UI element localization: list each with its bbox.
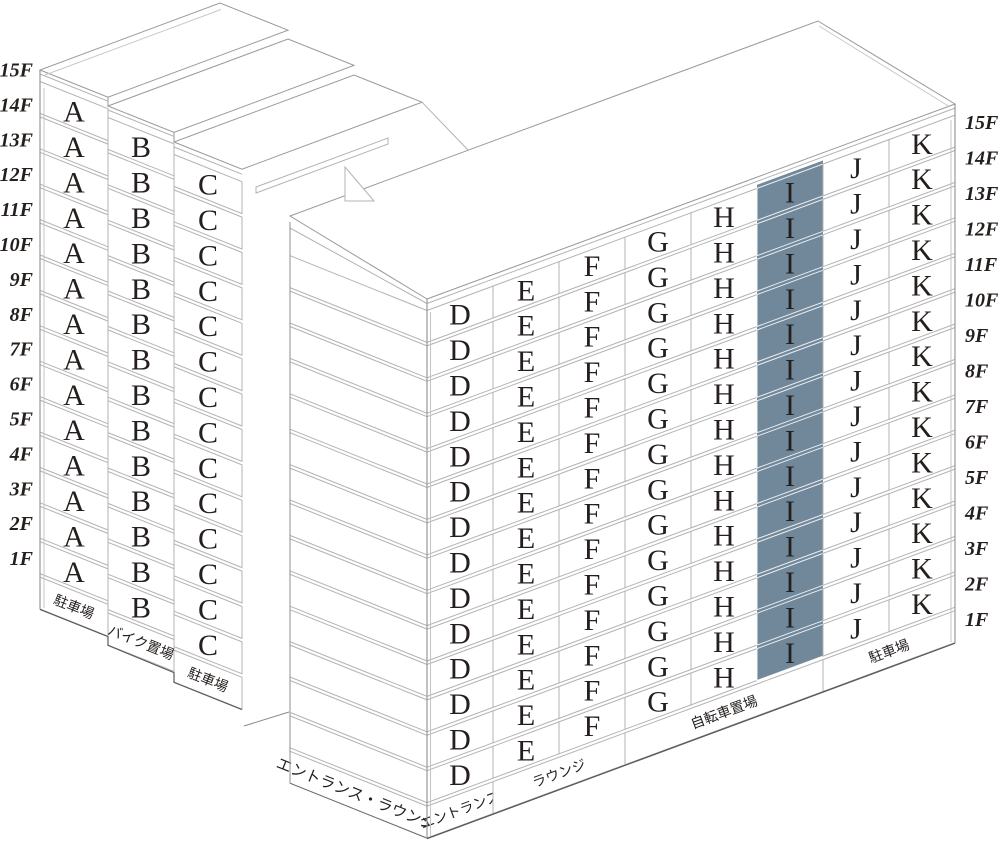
unit-letter-G: G <box>647 686 669 719</box>
unit-letter-J: J <box>850 294 862 327</box>
right-wing-column-E: EEEEEEEEEEEEEE <box>493 262 559 779</box>
side-wall: エントランス・ラウンジ <box>244 222 438 838</box>
unit-letter-C: C <box>198 346 218 379</box>
floor-label-right-6F: 6F <box>965 432 989 454</box>
unit-letter-D: D <box>449 547 471 580</box>
building-unit-map: エントランス・ラウンジAAAAAAAAAAAAAA駐車場BBBBBBBBBBBB… <box>0 0 1001 849</box>
unit-letter-D: D <box>449 334 471 367</box>
unit-letter-A: A <box>63 131 85 164</box>
unit-letter-F: F <box>584 533 601 566</box>
unit-letter-F: F <box>584 427 601 460</box>
unit-letter-D: D <box>449 653 471 686</box>
unit-letter-A: A <box>63 273 85 306</box>
unit-letter-E: E <box>517 664 535 697</box>
unit-letter-K: K <box>911 553 933 586</box>
unit-letter-J: J <box>850 329 862 362</box>
unit-letter-G: G <box>647 367 669 400</box>
unit-letter-B: B <box>131 591 151 624</box>
unit-letter-D: D <box>449 582 471 615</box>
floor-label-right-14F: 14F <box>965 148 999 170</box>
unit-letter-I: I <box>785 389 795 422</box>
unit-letter-E: E <box>517 628 535 661</box>
unit-letter-E: E <box>517 345 535 378</box>
unit-letter-A: A <box>63 202 85 235</box>
floor-label-right-15F: 15F <box>965 112 999 134</box>
unit-letter-H: H <box>713 201 735 234</box>
floor-label-left-11F: 11F <box>1 199 34 221</box>
unit-letter-D: D <box>449 759 471 792</box>
unit-letter-E: E <box>517 416 535 449</box>
unit-letter-J: J <box>850 188 862 221</box>
left-wing: AAAAAAAAAAAAAA駐車場BBBBBBBBBBBBBBバイク置場CCCC… <box>40 70 242 710</box>
unit-letter-F: F <box>584 569 601 602</box>
floor-label-left-7F: 7F <box>10 339 34 361</box>
unit-letter-I: I <box>785 495 795 528</box>
floor-label-left-4F: 4F <box>9 443 34 465</box>
unit-letter-J: J <box>850 400 862 433</box>
unit-letter-C: C <box>198 169 218 202</box>
unit-letter-B: B <box>131 450 151 483</box>
floor-label-left-5F: 5F <box>10 409 34 431</box>
unit-letter-F: F <box>584 604 601 637</box>
unit-letter-C: C <box>198 523 218 556</box>
floor-label-left-14F: 14F <box>0 94 34 116</box>
unit-letter-K: K <box>911 269 933 302</box>
unit-letter-I: I <box>785 247 795 280</box>
unit-letter-A: A <box>63 450 85 483</box>
floor-label-left-1F: 1F <box>10 548 34 570</box>
unit-letter-A: A <box>63 556 85 589</box>
unit-letter-A: A <box>63 308 85 341</box>
unit-letter-B: B <box>131 131 151 164</box>
floor-label-left-13F: 13F <box>0 129 34 151</box>
floor-label-right-13F: 13F <box>965 183 999 205</box>
floor-label-right-1F: 1F <box>965 609 989 631</box>
unit-letter-D: D <box>449 299 471 332</box>
right-wing-column-G: GGGGGGGGGGGGGG <box>625 213 691 730</box>
unit-letter-B: B <box>131 414 151 447</box>
unit-letter-J: J <box>850 365 862 398</box>
right-wing-column-H: HHHHHHHHHHHHHH <box>691 188 757 705</box>
unit-letter-G: G <box>647 438 669 471</box>
unit-letter-C: C <box>198 204 218 237</box>
unit-letter-B: B <box>131 521 151 554</box>
unit-letter-E: E <box>517 310 535 343</box>
unit-letter-J: J <box>850 223 862 256</box>
unit-letter-H: H <box>713 590 735 623</box>
floor-label-left-12F: 12F <box>0 164 34 186</box>
unit-letter-H: H <box>713 661 735 694</box>
roof-notch-triangle <box>345 167 374 201</box>
unit-letter-H: H <box>713 484 735 517</box>
unit-letter-F: F <box>584 462 601 495</box>
unit-letter-B: B <box>131 237 151 270</box>
unit-letter-C: C <box>198 487 218 520</box>
unit-letter-H: H <box>713 378 735 411</box>
floor-label-left-3F: 3F <box>9 478 34 500</box>
floor-label-left-9F: 9F <box>10 269 34 291</box>
floor-label-left-15F: 15F <box>0 60 34 82</box>
unit-letter-B: B <box>131 308 151 341</box>
unit-letter-G: G <box>647 650 669 683</box>
unit-letter-B: B <box>131 167 151 200</box>
unit-letter-K: K <box>911 199 933 232</box>
floor-label-left-10F: 10F <box>0 234 34 256</box>
unit-letter-G: G <box>647 332 669 365</box>
floor-label-right-8F: 8F <box>965 361 989 383</box>
unit-letter-G: G <box>647 509 669 542</box>
unit-letter-F: F <box>584 250 601 283</box>
unit-letter-I: I <box>785 531 795 564</box>
unit-letter-B: B <box>131 556 151 589</box>
unit-letter-H: H <box>713 555 735 588</box>
unit-letter-B: B <box>131 379 151 412</box>
unit-letter-F: F <box>584 675 601 708</box>
unit-letter-H: H <box>713 449 735 482</box>
unit-letter-J: J <box>850 435 862 468</box>
unit-letter-C: C <box>198 381 218 414</box>
unit-letter-A: A <box>63 96 85 129</box>
unit-letter-E: E <box>517 487 535 520</box>
unit-letter-K: K <box>911 305 933 338</box>
unit-letter-G: G <box>647 615 669 648</box>
floor-label-right-10F: 10F <box>965 290 999 312</box>
unit-letter-D: D <box>449 688 471 721</box>
unit-letter-C: C <box>198 558 218 591</box>
unit-letter-E: E <box>517 381 535 414</box>
right-wing-column-J: JJJJJJJJJJJJJJ <box>823 140 889 657</box>
floor-label-right-2F: 2F <box>964 574 989 596</box>
unit-letter-I: I <box>785 566 795 599</box>
unit-letter-A: A <box>63 343 85 376</box>
unit-letter-D: D <box>449 440 471 473</box>
unit-letter-D: D <box>449 724 471 757</box>
unit-letter-B: B <box>131 273 151 306</box>
left-wing-column-A: AAAAAAAAAAAAAA駐車場 <box>40 74 108 636</box>
unit-letter-D: D <box>449 476 471 509</box>
unit-letter-J: J <box>850 258 862 291</box>
unit-letter-F: F <box>584 285 601 318</box>
unit-letter-G: G <box>647 473 669 506</box>
unit-letter-J: J <box>850 152 862 185</box>
unit-letter-C: C <box>198 310 218 343</box>
unit-letter-A: A <box>63 520 85 553</box>
unit-letter-K: K <box>911 446 933 479</box>
unit-letter-G: G <box>647 261 669 294</box>
unit-letter-B: B <box>131 202 151 235</box>
unit-letter-K: K <box>911 128 933 161</box>
unit-letter-D: D <box>449 511 471 544</box>
left-wing-column-C: CCCCCCCCCCCCCC駐車場 <box>174 147 242 709</box>
unit-letter-A: A <box>63 485 85 518</box>
floor-label-right-7F: 7F <box>965 396 989 418</box>
unit-letter-C: C <box>198 593 218 626</box>
unit-letter-B: B <box>131 485 151 518</box>
building-elevation-svg: エントランス・ラウンジAAAAAAAAAAAAAA駐車場BBBBBBBBBBBB… <box>0 0 1001 849</box>
unit-letter-E: E <box>517 558 535 591</box>
unit-letter-H: H <box>713 272 735 305</box>
unit-letter-F: F <box>584 498 601 531</box>
unit-letter-G: G <box>647 579 669 612</box>
unit-letter-J: J <box>850 542 862 575</box>
unit-letter-K: K <box>911 340 933 373</box>
unit-letter-G: G <box>647 544 669 577</box>
unit-letter-K: K <box>911 234 933 267</box>
unit-letter-I: I <box>785 177 795 210</box>
floor-label-right-12F: 12F <box>965 219 999 241</box>
right-wing-column-F: FFFFFFFFFFFFFF <box>559 237 625 754</box>
unit-letter-E: E <box>517 593 535 626</box>
unit-letter-J: J <box>850 612 862 645</box>
unit-letter-E: E <box>517 451 535 484</box>
unit-letter-K: K <box>911 517 933 550</box>
unit-letter-J: J <box>850 471 862 504</box>
unit-letter-G: G <box>647 225 669 258</box>
floor-label-right-5F: 5F <box>965 467 989 489</box>
unit-letter-C: C <box>198 239 218 272</box>
unit-letter-E: E <box>517 699 535 732</box>
unit-letter-B: B <box>131 344 151 377</box>
unit-letter-E: E <box>517 274 535 307</box>
right-wing-column-D: DDDDDDDDDDDDDD <box>427 286 493 803</box>
unit-letter-F: F <box>584 639 601 672</box>
unit-letter-A: A <box>63 414 85 447</box>
floor-label-right-11F: 11F <box>965 254 998 276</box>
roof-valley-edge <box>422 102 468 150</box>
floor-label-right-4F: 4F <box>964 503 989 525</box>
unit-letter-G: G <box>647 296 669 329</box>
right-wing-column-K: KKKKKKKKKKKKKK <box>889 115 955 632</box>
unit-letter-F: F <box>584 710 601 743</box>
floor-label-right-3F: 3F <box>964 538 989 560</box>
unit-letter-C: C <box>198 416 218 449</box>
unit-letter-H: H <box>713 413 735 446</box>
unit-letter-I: I <box>785 424 795 457</box>
unit-letter-K: K <box>911 482 933 515</box>
unit-letter-E: E <box>517 735 535 768</box>
unit-letter-F: F <box>584 321 601 354</box>
unit-letter-K: K <box>911 588 933 621</box>
unit-letter-I: I <box>785 460 795 493</box>
unit-letter-I: I <box>785 318 795 351</box>
unit-letter-D: D <box>449 405 471 438</box>
unit-letter-I: I <box>785 283 795 316</box>
unit-letter-H: H <box>713 626 735 659</box>
unit-letter-C: C <box>198 275 218 308</box>
unit-letter-I: I <box>785 212 795 245</box>
unit-letter-E: E <box>517 522 535 555</box>
floor-label-left-8F: 8F <box>10 304 34 326</box>
unit-letter-A: A <box>63 379 85 412</box>
unit-letter-K: K <box>911 163 933 196</box>
courtyard-ground-line <box>244 712 289 726</box>
unit-letter-J: J <box>850 577 862 610</box>
unit-letter-C: C <box>198 629 218 662</box>
floor-label-left-6F: 6F <box>10 374 34 396</box>
unit-letter-I: I <box>785 601 795 634</box>
unit-letter-K: K <box>911 376 933 409</box>
unit-letter-A: A <box>63 166 85 199</box>
unit-letter-H: H <box>713 520 735 553</box>
unit-letter-C: C <box>198 452 218 485</box>
unit-letter-I: I <box>785 637 795 670</box>
unit-letter-D: D <box>449 370 471 403</box>
unit-letter-D: D <box>449 617 471 650</box>
floor-label-right-9F: 9F <box>965 325 989 347</box>
unit-letter-F: F <box>584 392 601 425</box>
unit-letter-A: A <box>63 237 85 270</box>
unit-letter-H: H <box>713 307 735 340</box>
unit-letter-H: H <box>713 236 735 269</box>
unit-letter-J: J <box>850 506 862 539</box>
floor-label-left-2F: 2F <box>9 513 34 535</box>
unit-letter-I: I <box>785 354 795 387</box>
unit-letter-F: F <box>584 356 601 389</box>
unit-letter-K: K <box>911 411 933 444</box>
left-wing-column-B: BBBBBBBBBBBBBBバイク置場 <box>105 110 176 671</box>
unit-letter-H: H <box>713 343 735 376</box>
unit-letter-G: G <box>647 402 669 435</box>
